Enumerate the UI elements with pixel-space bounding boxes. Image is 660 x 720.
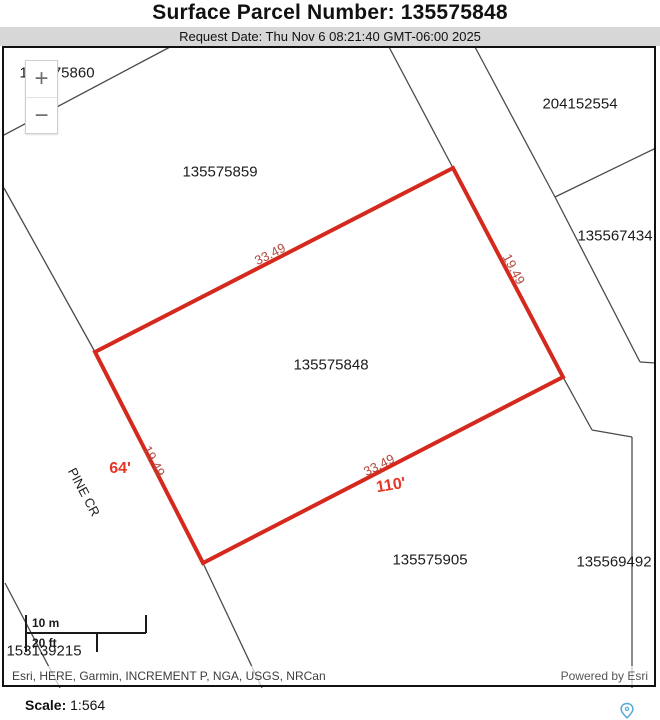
parcel-boundary-line [555,148,656,197]
scale-bar [26,615,146,652]
pin-dot [625,707,628,710]
parcel-map-page: Surface Parcel Number: 135575848 Request… [0,0,660,720]
parcel-boundary-line [475,47,555,197]
parcel-boundary-line [640,362,656,363]
zoom-in-button[interactable]: + [26,61,57,97]
subject-parcel-outline [95,168,563,563]
parcel-boundary-line [563,377,592,430]
parcel-boundary-line [4,188,95,352]
map-attribution-bar: Esri, HERE, Garmin, INCREMENT P, NGA, US… [4,666,656,686]
zoom-out-button[interactable]: − [26,97,57,133]
parcel-boundary-line [389,47,453,168]
parcel-boundary-line [555,197,640,362]
location-pin-icon [618,700,636,720]
powered-by-esri: Powered by Esri [561,669,648,683]
attribution-sources: Esri, HERE, Garmin, INCREMENT P, NGA, US… [12,669,326,683]
map-canvas [0,0,660,720]
parcel-boundary-line [592,430,632,437]
zoom-control: + − [25,60,58,134]
